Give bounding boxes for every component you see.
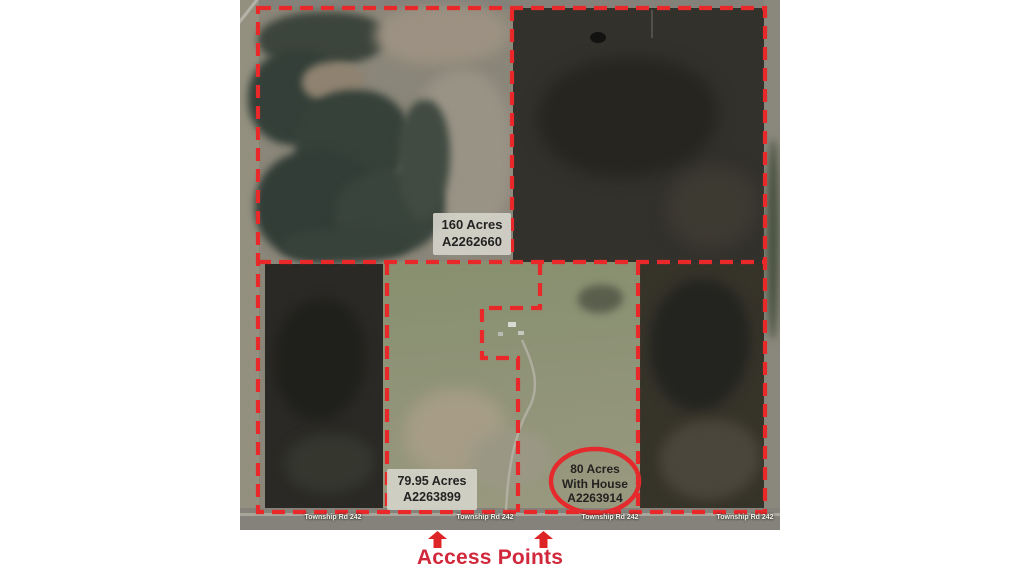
terrain-dark-parcel: [265, 264, 383, 510]
parcel-listing-id: A2262660: [439, 234, 505, 251]
parcel-listing-id: A2263899: [393, 489, 471, 505]
terrain-dark-parcel: [513, 8, 765, 263]
terrain-patch: [660, 420, 760, 500]
road-name-label: Township Rd 242: [716, 514, 773, 521]
terrain-patch: [764, 0, 780, 530]
parcel-listing-id: A2263914: [543, 491, 647, 506]
pond: [590, 32, 606, 43]
forest-patch: [538, 58, 718, 178]
forest-patch: [280, 228, 410, 263]
forest-patch: [767, 140, 779, 340]
parcel-label-79-acres: 79.95 Acres A2263899: [387, 469, 477, 510]
forest-patch: [275, 300, 365, 420]
farm-building: [518, 331, 524, 335]
road-name-label: Township Rd 242: [304, 514, 361, 521]
road-name-label: Township Rd 242: [581, 514, 638, 521]
parcel-feature: With House: [543, 477, 647, 492]
access-points-label: Access Points: [402, 546, 578, 570]
parcel-acreage: 79.95 Acres: [393, 473, 471, 489]
road-name-label: Township Rd 242: [456, 514, 513, 521]
satellite-image: 160 Acres A2262660 79.95 Acres A2263899 …: [240, 0, 780, 530]
terrain-patch: [470, 430, 550, 490]
terrain-patch: [285, 434, 375, 494]
parcel-acreage: 160 Acres: [439, 217, 505, 234]
forest-patch: [650, 280, 750, 410]
terrain-dark-parcel: [640, 263, 765, 509]
terrain-patch: [578, 285, 623, 313]
terrain-patch: [668, 168, 758, 248]
parcel-label-80-acres: 80 Acres With House A2263914: [543, 462, 647, 506]
parcel-acreage: 80 Acres: [543, 462, 647, 477]
farm-building: [508, 322, 516, 327]
listing-map-page: 160 Acres A2262660 79.95 Acres A2263899 …: [0, 0, 1024, 576]
parcel-label-160-acres: 160 Acres A2262660: [433, 213, 511, 255]
terrain-patch: [375, 5, 510, 65]
farm-building: [498, 332, 503, 336]
